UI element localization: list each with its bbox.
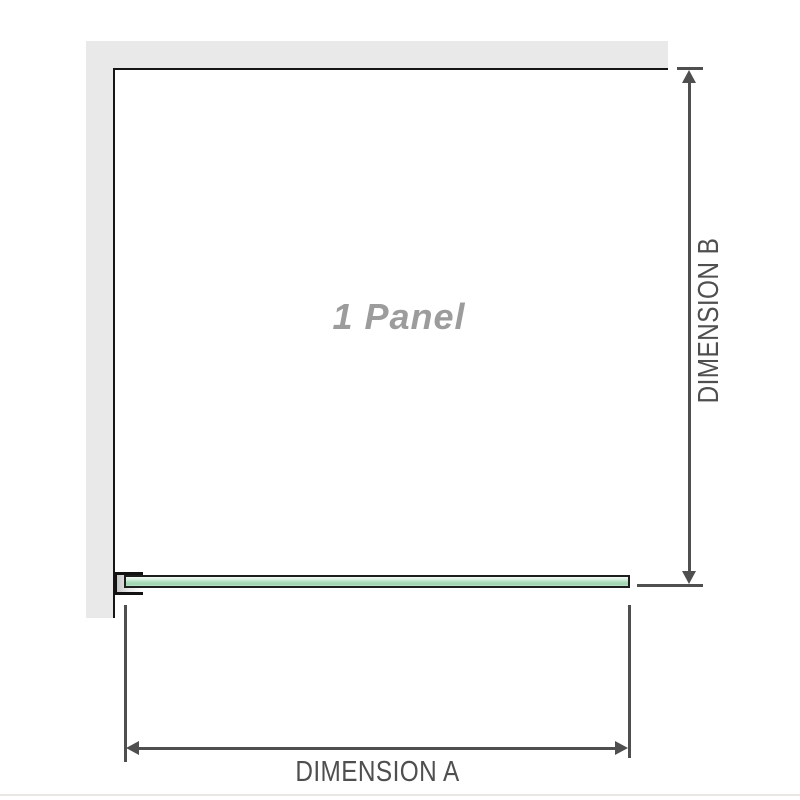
wall-top-strip <box>86 41 668 68</box>
dimension-a-line <box>134 747 621 750</box>
dimension-b-arrow-down-icon <box>682 571 696 584</box>
dimension-a-left-extension-line <box>124 605 127 762</box>
panel-top-edge-line <box>113 68 668 70</box>
glass-panel-bar <box>124 575 630 588</box>
dimension-b-line <box>688 78 691 576</box>
panel-count-label: 1 Panel <box>249 294 549 340</box>
panel-left-edge-line <box>113 68 115 618</box>
dimension-a-label: DIMENSION A <box>167 757 588 787</box>
dimension-a-right-extension-line <box>628 605 631 758</box>
bottom-separator-line <box>0 794 800 796</box>
panel-dimension-diagram: 1 Panel DIMENSION B DIMENSION A <box>0 0 800 800</box>
dimension-a-arrow-left-icon <box>126 741 139 755</box>
dimension-b-bottom-cap-line <box>637 584 703 587</box>
dimension-b-label: DIMENSION B <box>694 261 724 404</box>
wall-left-strip <box>86 41 113 618</box>
dimension-a-arrow-right-icon <box>615 741 628 755</box>
dimension-b-arrow-up-icon <box>682 70 696 83</box>
